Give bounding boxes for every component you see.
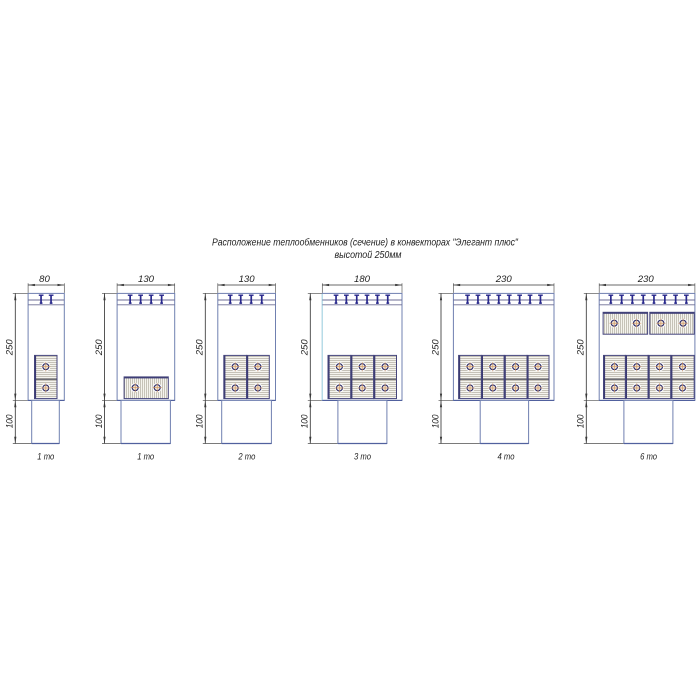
svg-text:3 то: 3 то — [354, 452, 372, 463]
svg-text:100: 100 — [195, 414, 206, 428]
svg-text:250: 250 — [94, 339, 105, 356]
svg-text:250: 250 — [430, 339, 441, 356]
svg-text:250: 250 — [195, 339, 206, 356]
svg-text:4 то: 4 то — [498, 452, 516, 463]
svg-text:100: 100 — [576, 414, 587, 428]
svg-text:1 то: 1 то — [37, 452, 55, 463]
svg-text:Расположение теплообменников (: Расположение теплообменников (сечение) в… — [212, 238, 518, 249]
svg-text:250: 250 — [5, 339, 16, 356]
svg-text:100: 100 — [300, 414, 311, 428]
svg-text:100: 100 — [430, 414, 441, 428]
svg-text:высотой 250мм: высотой 250мм — [335, 250, 402, 261]
svg-text:80: 80 — [39, 274, 50, 285]
svg-text:180: 180 — [354, 274, 371, 285]
svg-text:230: 230 — [637, 274, 655, 285]
svg-text:130: 130 — [138, 274, 155, 285]
svg-text:100: 100 — [5, 414, 16, 428]
svg-text:100: 100 — [94, 414, 105, 428]
svg-text:230: 230 — [495, 274, 513, 285]
svg-text:6 то: 6 то — [640, 452, 658, 463]
svg-text:1 то: 1 то — [137, 452, 155, 463]
svg-text:250: 250 — [300, 339, 311, 356]
svg-text:130: 130 — [239, 274, 256, 285]
svg-text:2 то: 2 то — [238, 452, 256, 463]
svg-text:250: 250 — [576, 339, 587, 356]
